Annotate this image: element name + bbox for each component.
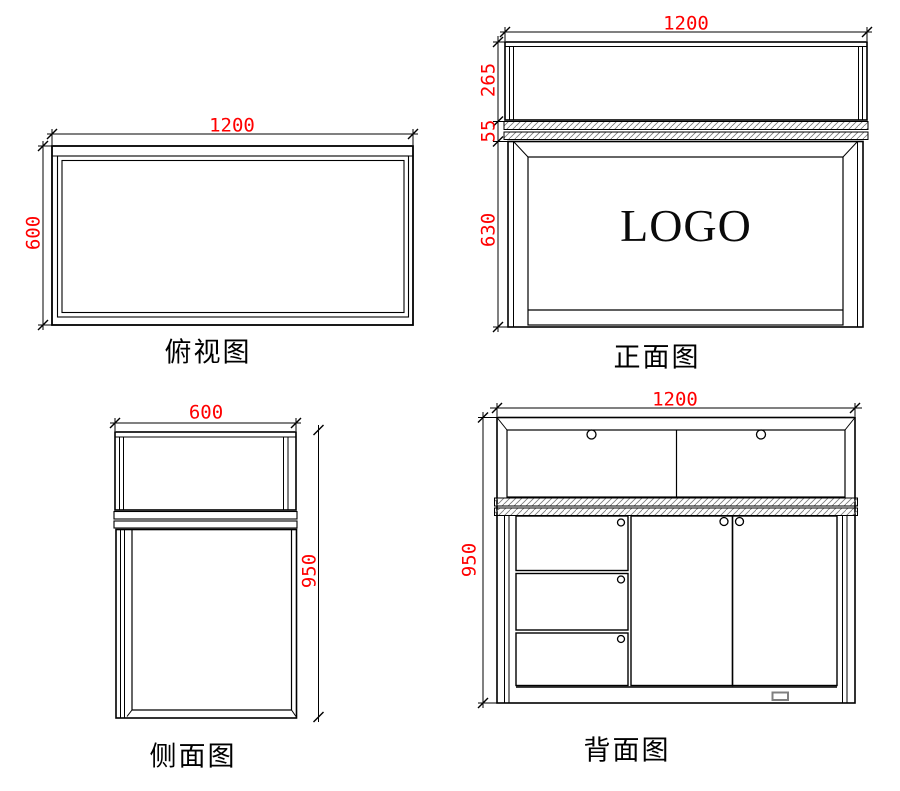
side-view-depth-dimension: 600: [189, 404, 223, 423]
back-counter-band-top: [495, 498, 858, 506]
top-view-depth-dimension: 600: [25, 216, 44, 250]
back-drawer-1: [516, 516, 628, 571]
back-view-width-dimension: 1200: [652, 391, 698, 410]
front-glass-frame: [505, 42, 867, 120]
front-view-cabinet-height-dimension: 630: [480, 213, 499, 247]
back-counter-band-bottom: [495, 508, 858, 516]
top-view-outer-frame: [52, 146, 413, 325]
back-door-left: [631, 516, 733, 686]
front-view-linework: [493, 27, 872, 332]
side-view-linework: [110, 418, 324, 722]
top-view-width-dimension: 1200: [209, 117, 255, 136]
front-panel-logo-text: LOGO: [620, 203, 752, 249]
top-view-glass-frame-inner: [62, 161, 404, 313]
top-view-title: 俯视图: [165, 340, 252, 367]
front-view-width-dimension: 1200: [663, 15, 709, 34]
side-glass-frame: [115, 432, 296, 510]
back-sliding-door-left-finger-hole: [587, 430, 596, 439]
back-door-left-knob: [720, 518, 728, 526]
back-drawer-2: [516, 574, 628, 631]
back-view-linework: [478, 403, 862, 708]
back-door-right-knob: [736, 518, 744, 526]
side-view-height-dimension: 950: [301, 554, 320, 588]
back-door-right: [733, 516, 838, 686]
front-view-title: 正面图: [614, 345, 701, 372]
side-cabinet-frame: [116, 530, 297, 719]
back-drawer-3: [516, 633, 628, 686]
back-drawer-2-knob: [618, 576, 625, 583]
front-counter-band-bottom: [504, 132, 868, 140]
drawing-linework: [0, 0, 900, 791]
top-view-glass-frame-outer: [58, 156, 409, 317]
front-counter-band-top: [504, 122, 868, 130]
back-view-title: 背面图: [584, 738, 671, 765]
top-view-linework: [38, 129, 418, 330]
side-counter-band-top: [114, 512, 297, 520]
back-view-height-dimension: 950: [461, 543, 480, 577]
front-view-display-height-dimension: 265: [480, 63, 499, 97]
back-drawer-3-knob: [618, 636, 625, 643]
back-drawer-1-knob: [618, 519, 625, 526]
cad-drawing-sheet: 1200 600 1200 265 55 630 600 950 1200 95…: [0, 0, 900, 791]
side-view-title: 侧面图: [150, 744, 237, 771]
back-plinth-vent-plate: [773, 693, 789, 701]
front-view-counter-thickness-dimension: 55: [480, 120, 499, 143]
back-sliding-door-right-finger-hole: [757, 430, 766, 439]
side-counter-band-bottom: [114, 521, 297, 528]
